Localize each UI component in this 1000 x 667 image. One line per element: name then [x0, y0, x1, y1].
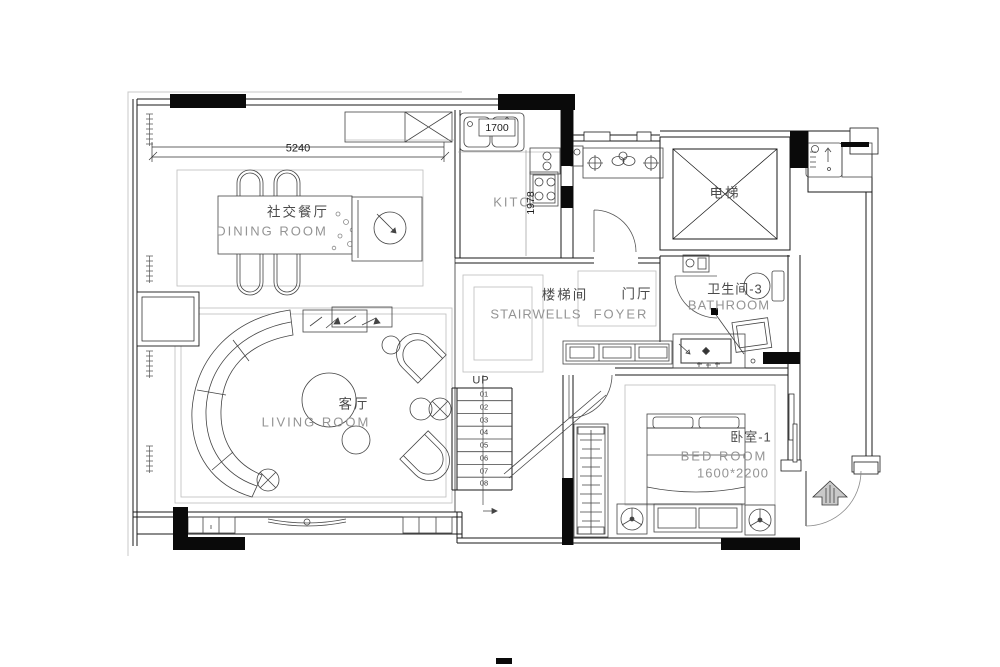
ceiling-fan-right — [745, 505, 775, 535]
elevator-label: 电梯 — [710, 186, 741, 200]
living-plant-box — [303, 307, 392, 332]
armchair-bottom — [400, 431, 458, 489]
stair-step-4: 04 — [480, 428, 488, 436]
stair-step-3: 03 — [480, 416, 488, 424]
bedroom-door-arc — [569, 375, 612, 418]
stair-step-1: 01 — [480, 390, 488, 398]
bed-bench — [654, 504, 742, 532]
bathroom-label-en: BATHROOM — [688, 299, 770, 312]
stair-step-5: 05 — [480, 441, 488, 449]
stair-step-2: 02 — [480, 403, 488, 411]
floor-plan-linework — [0, 0, 1000, 667]
dining-room-label-cn: 社交餐厅 — [267, 205, 329, 219]
ceiling-fan-left — [617, 504, 647, 534]
stairwell-label-cn: 楼梯间 — [542, 288, 589, 302]
foyer-bench — [563, 341, 672, 364]
foyer-label-en: FOYER — [594, 308, 649, 321]
hall-console — [571, 146, 663, 178]
small-table — [382, 336, 400, 354]
wardrobe — [574, 424, 608, 537]
living-room-label-cn: 客厅 — [339, 397, 370, 411]
dim-1978: 1978 — [526, 191, 537, 214]
stairwell-label-en: STAIRWELLS — [490, 308, 581, 321]
side-table — [342, 426, 370, 454]
bottom-windows — [188, 517, 452, 533]
stair-step-8: 08 — [480, 479, 488, 487]
sideboard — [352, 197, 422, 261]
curved-sofa — [192, 310, 293, 497]
dim-5240: 5240 — [286, 144, 310, 155]
dim-1700: 1700 — [485, 122, 508, 133]
bedroom-label-en: BED ROOM — [681, 450, 768, 463]
stairs-up-label: UP — [472, 376, 489, 387]
stair-step-7: 07 — [480, 467, 488, 475]
living-room-label-en: LIVING ROOM — [262, 416, 371, 429]
entry-arrow — [813, 481, 847, 505]
floor-plan: 社交餐厅 DINING ROOM KITC 电梯 楼梯间 STAIRWELLS … — [0, 0, 1000, 667]
stair-step-6: 06 — [480, 454, 488, 462]
bedroom-label-cn: 卧室-1 — [730, 431, 772, 444]
bathroom-label-cn: 卫生间-3 — [707, 283, 763, 296]
bedroom-size-label: 1600*2200 — [697, 467, 769, 480]
tv-console — [268, 519, 346, 526]
shower — [732, 318, 772, 353]
light-symbol-2 — [257, 469, 279, 491]
dining-room-label-en: DINING ROOM — [216, 225, 328, 238]
top-cabinet — [345, 112, 455, 142]
foyer-label-cn: 门厅 — [622, 287, 653, 301]
hall-door-arc — [594, 210, 636, 252]
armchair-top — [388, 325, 446, 383]
